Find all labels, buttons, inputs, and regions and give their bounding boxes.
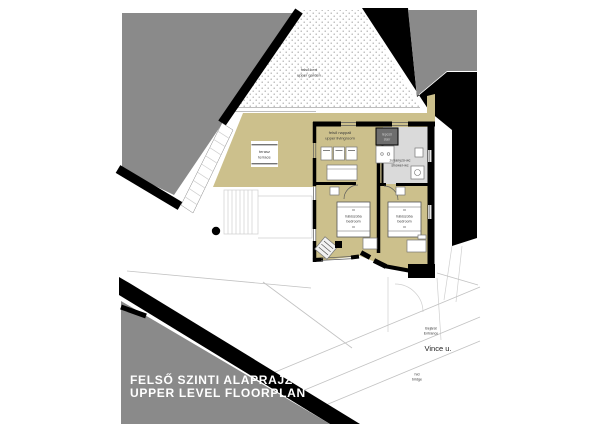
floorplan-sheet: terasz terrace FELSŐ SZINTI ALAPRAJZ UPP… <box>0 0 600 424</box>
wardrobe <box>363 238 377 249</box>
bathroom-label-hu: zuhanyzó-wc <box>390 159 411 163</box>
bathroom-label-en: shower-wc <box>391 164 408 168</box>
title-english: UPPER LEVEL FLOORPLAN <box>130 386 306 400</box>
stair-box: lépcső stair <box>376 128 398 145</box>
bed-2: hálószoba bedroom <box>388 202 421 237</box>
living-label-hu: felső nappali <box>329 130 352 135</box>
bridge-label-en: bridge <box>412 378 422 382</box>
nightstand <box>330 187 339 195</box>
garden-label-hu: felső kert <box>301 67 318 72</box>
wardrobe <box>407 240 426 252</box>
bedroom2-label-hu: hálószoba <box>396 215 412 219</box>
bedroom2-label-en: bedroom <box>397 220 411 224</box>
bedroom1-label-hu: hálószoba <box>345 215 361 219</box>
terrace-label: terasz terrace <box>251 141 278 167</box>
terrace-label-hu: terasz <box>259 149 270 154</box>
tree-marker <box>212 227 220 235</box>
street-name-label: Vince u. <box>425 344 452 353</box>
bedroom1-label-en: bedroom <box>346 220 360 224</box>
house-plan: lépcső stair zuhanyzó-wc shower-wc felső… <box>313 122 435 278</box>
floorplan-drawing: terasz terrace FELSŐ SZINTI ALAPRAJZ UPP… <box>0 0 600 424</box>
entrance-label-hu: Bejárat <box>425 327 436 331</box>
living-label-en: upper livingroom <box>325 136 355 141</box>
stair-label-hu: lépcső <box>382 133 392 137</box>
wc-fixture <box>411 166 424 179</box>
garden-label-en: upper garden <box>297 73 321 78</box>
terrace-label-en: terrace <box>258 155 271 160</box>
bed-1: hálószoba bedroom <box>337 202 370 237</box>
stair-label-en: stair <box>384 138 391 142</box>
title-hungarian: FELSŐ SZINTI ALAPRAJZ <box>130 372 293 387</box>
title-block: FELSŐ SZINTI ALAPRAJZ UPPER LEVEL FLOORP… <box>130 372 306 400</box>
bridge-label-hu: híd <box>415 373 420 377</box>
entrance-label-en: Entrance <box>424 332 438 336</box>
column-marker <box>335 241 342 248</box>
nightstand <box>396 187 405 195</box>
